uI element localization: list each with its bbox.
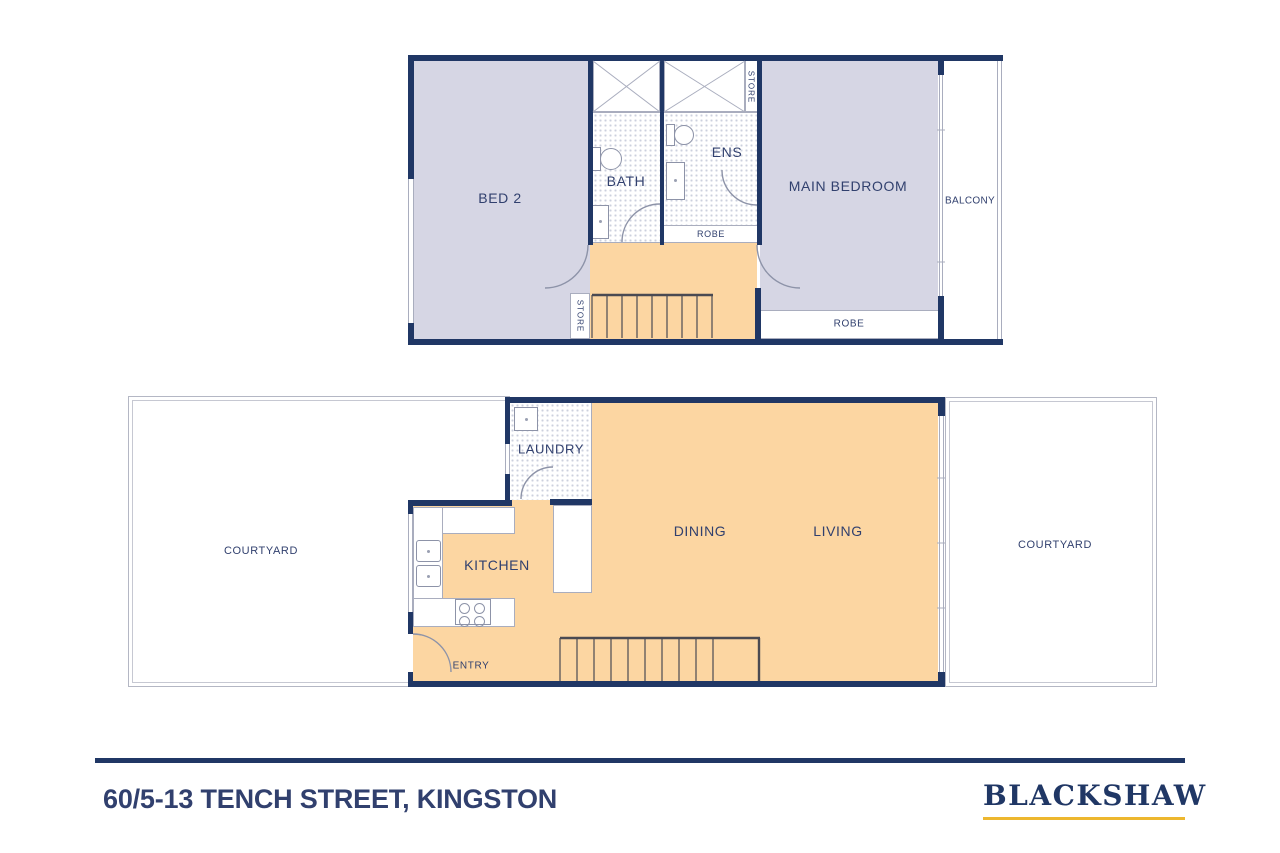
room-label-store-top: STORE: [747, 71, 756, 103]
room-label-dining: DINING: [674, 523, 727, 539]
room-label-kitchen: KITCHEN: [464, 557, 530, 573]
wall-segment: [505, 397, 945, 403]
wall-segment: [938, 397, 945, 416]
room-label-bed2: BED 2: [478, 190, 521, 206]
room-label-robe-ens: ROBE: [697, 229, 725, 239]
void-skylight-right: [664, 61, 745, 112]
void-skylight-left: [593, 61, 660, 112]
landing-top-line: [590, 242, 757, 243]
burner-icon: [474, 603, 485, 614]
property-address: 60/5-13 TENCH STREET, KINGSTON: [103, 784, 557, 815]
toilet-fixture: [674, 125, 694, 145]
footer-divider: [95, 758, 1185, 763]
room-label-laundry: LAUNDRY: [518, 442, 584, 457]
wall-segment: [755, 288, 761, 339]
blackshaw-logo: BLACKSHAW: [983, 779, 1185, 820]
room-label-bath: BATH: [607, 173, 646, 189]
room-label-main-bedroom: MAIN BEDROOM: [789, 178, 907, 194]
room-label-courtyard-left: COURTYARD: [224, 545, 298, 557]
window-bed2: [408, 179, 414, 323]
wall-segment: [408, 323, 414, 339]
room-label-store-bottom: STORE: [576, 300, 585, 332]
floor-plan-page: BED 2 BATH ENS ROBE MAIN BEDROOM BALCONY…: [0, 0, 1280, 853]
room-label-balcony: BALCONY: [945, 196, 995, 207]
room-label-robe-main: ROBE: [834, 319, 865, 330]
wall-segment: [588, 55, 593, 245]
wall-segment: [938, 296, 944, 339]
cooktop-fixture: [455, 599, 491, 625]
wall-segment: [408, 55, 1003, 61]
window-main-bedroom: [939, 75, 943, 296]
pantry-bench: [553, 505, 592, 593]
wall-segment: [408, 672, 413, 687]
window-laundry: [505, 444, 510, 474]
burner-icon: [459, 603, 470, 614]
wall-segment: [660, 55, 664, 245]
room-label-living: LIVING: [813, 523, 863, 539]
wall-segment: [938, 672, 945, 687]
wall-segment: [757, 55, 762, 245]
wall-segment: [938, 58, 944, 75]
tap-icon: [427, 550, 430, 553]
toilet-fixture: [600, 148, 622, 170]
wall-segment: [408, 500, 413, 514]
burner-icon: [474, 616, 485, 627]
window-kitchen: [408, 514, 413, 612]
wall-segment: [408, 612, 413, 634]
burner-icon: [459, 616, 470, 627]
wall-segment: [408, 500, 512, 506]
window-living: [939, 416, 944, 672]
tap-icon: [427, 575, 430, 578]
tap-icon: [674, 179, 677, 182]
room-label-ens: ENS: [712, 144, 743, 160]
room-label-courtyard-right: COURTYARD: [1018, 539, 1092, 551]
tap-icon: [599, 220, 602, 223]
wall-segment: [408, 681, 945, 687]
wall-segment: [550, 499, 592, 505]
balcony-railing: [997, 58, 1002, 342]
tap-icon: [525, 418, 528, 421]
wall-segment: [408, 55, 414, 179]
room-label-entry: ENTRY: [453, 661, 490, 672]
wall-segment: [408, 339, 1003, 345]
upper-landing: [590, 243, 757, 339]
wall-segment: [505, 397, 510, 444]
